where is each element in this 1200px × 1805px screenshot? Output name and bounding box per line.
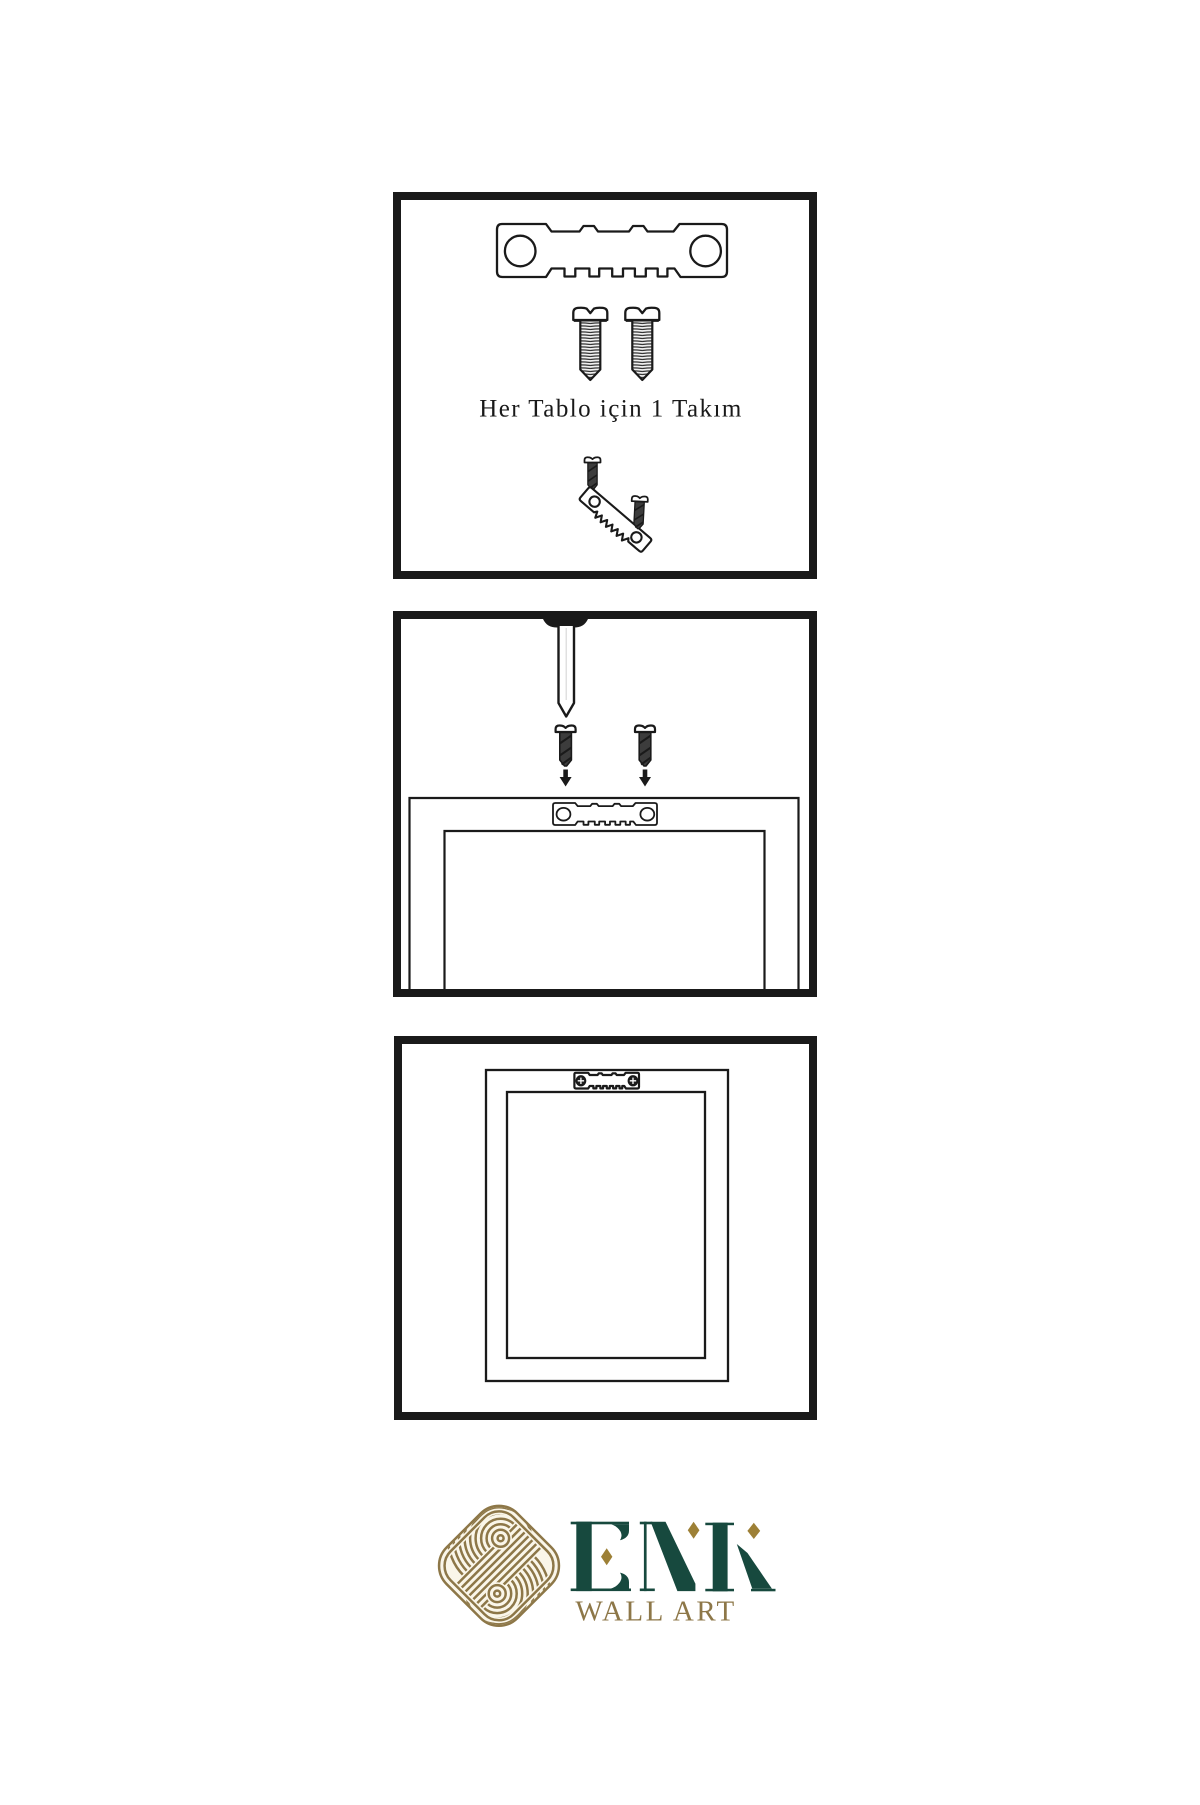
svg-text:Her Tablo için 1 Takım: Her Tablo için 1 Takım <box>479 396 743 423</box>
svg-text:WALL ART: WALL ART <box>575 1596 736 1628</box>
